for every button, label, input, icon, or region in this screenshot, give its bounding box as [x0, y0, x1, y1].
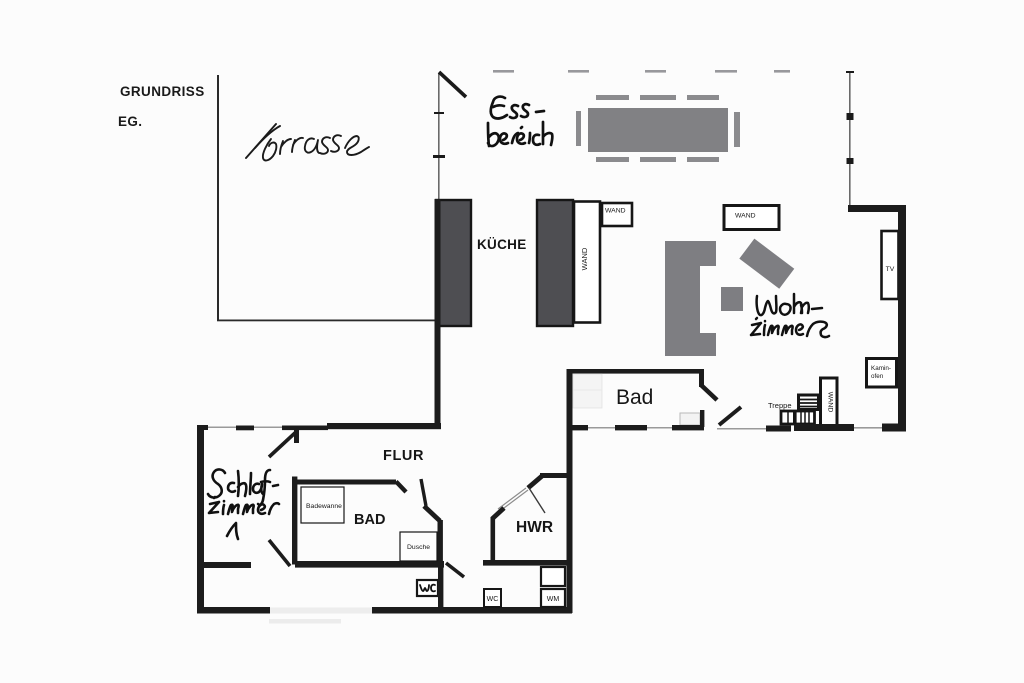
svg-text:WAND: WAND: [580, 247, 589, 270]
svg-text:GRUNDRISS: GRUNDRISS: [120, 84, 205, 99]
svg-text:WAND: WAND: [735, 213, 756, 220]
svg-text:Kamin-: Kamin-: [871, 365, 891, 372]
svg-text:Dusche: Dusche: [407, 544, 430, 551]
svg-text:EG.: EG.: [118, 114, 142, 129]
svg-text:WM: WM: [547, 596, 560, 603]
svg-text:BAD: BAD: [354, 512, 385, 528]
svg-text:FLUR: FLUR: [383, 448, 424, 464]
svg-text:HWR: HWR: [516, 519, 553, 536]
svg-text:WAND: WAND: [827, 392, 834, 413]
svg-text:WC: WC: [487, 596, 499, 603]
svg-text:Treppe: Treppe: [768, 401, 792, 410]
svg-text:TV: TV: [886, 266, 895, 273]
svg-text:ofen: ofen: [871, 373, 884, 380]
svg-text:Badewanne: Badewanne: [306, 503, 342, 510]
svg-text:KÜCHE: KÜCHE: [477, 237, 527, 252]
svg-text:Bad: Bad: [616, 386, 653, 409]
svg-text:WAND: WAND: [605, 208, 626, 215]
